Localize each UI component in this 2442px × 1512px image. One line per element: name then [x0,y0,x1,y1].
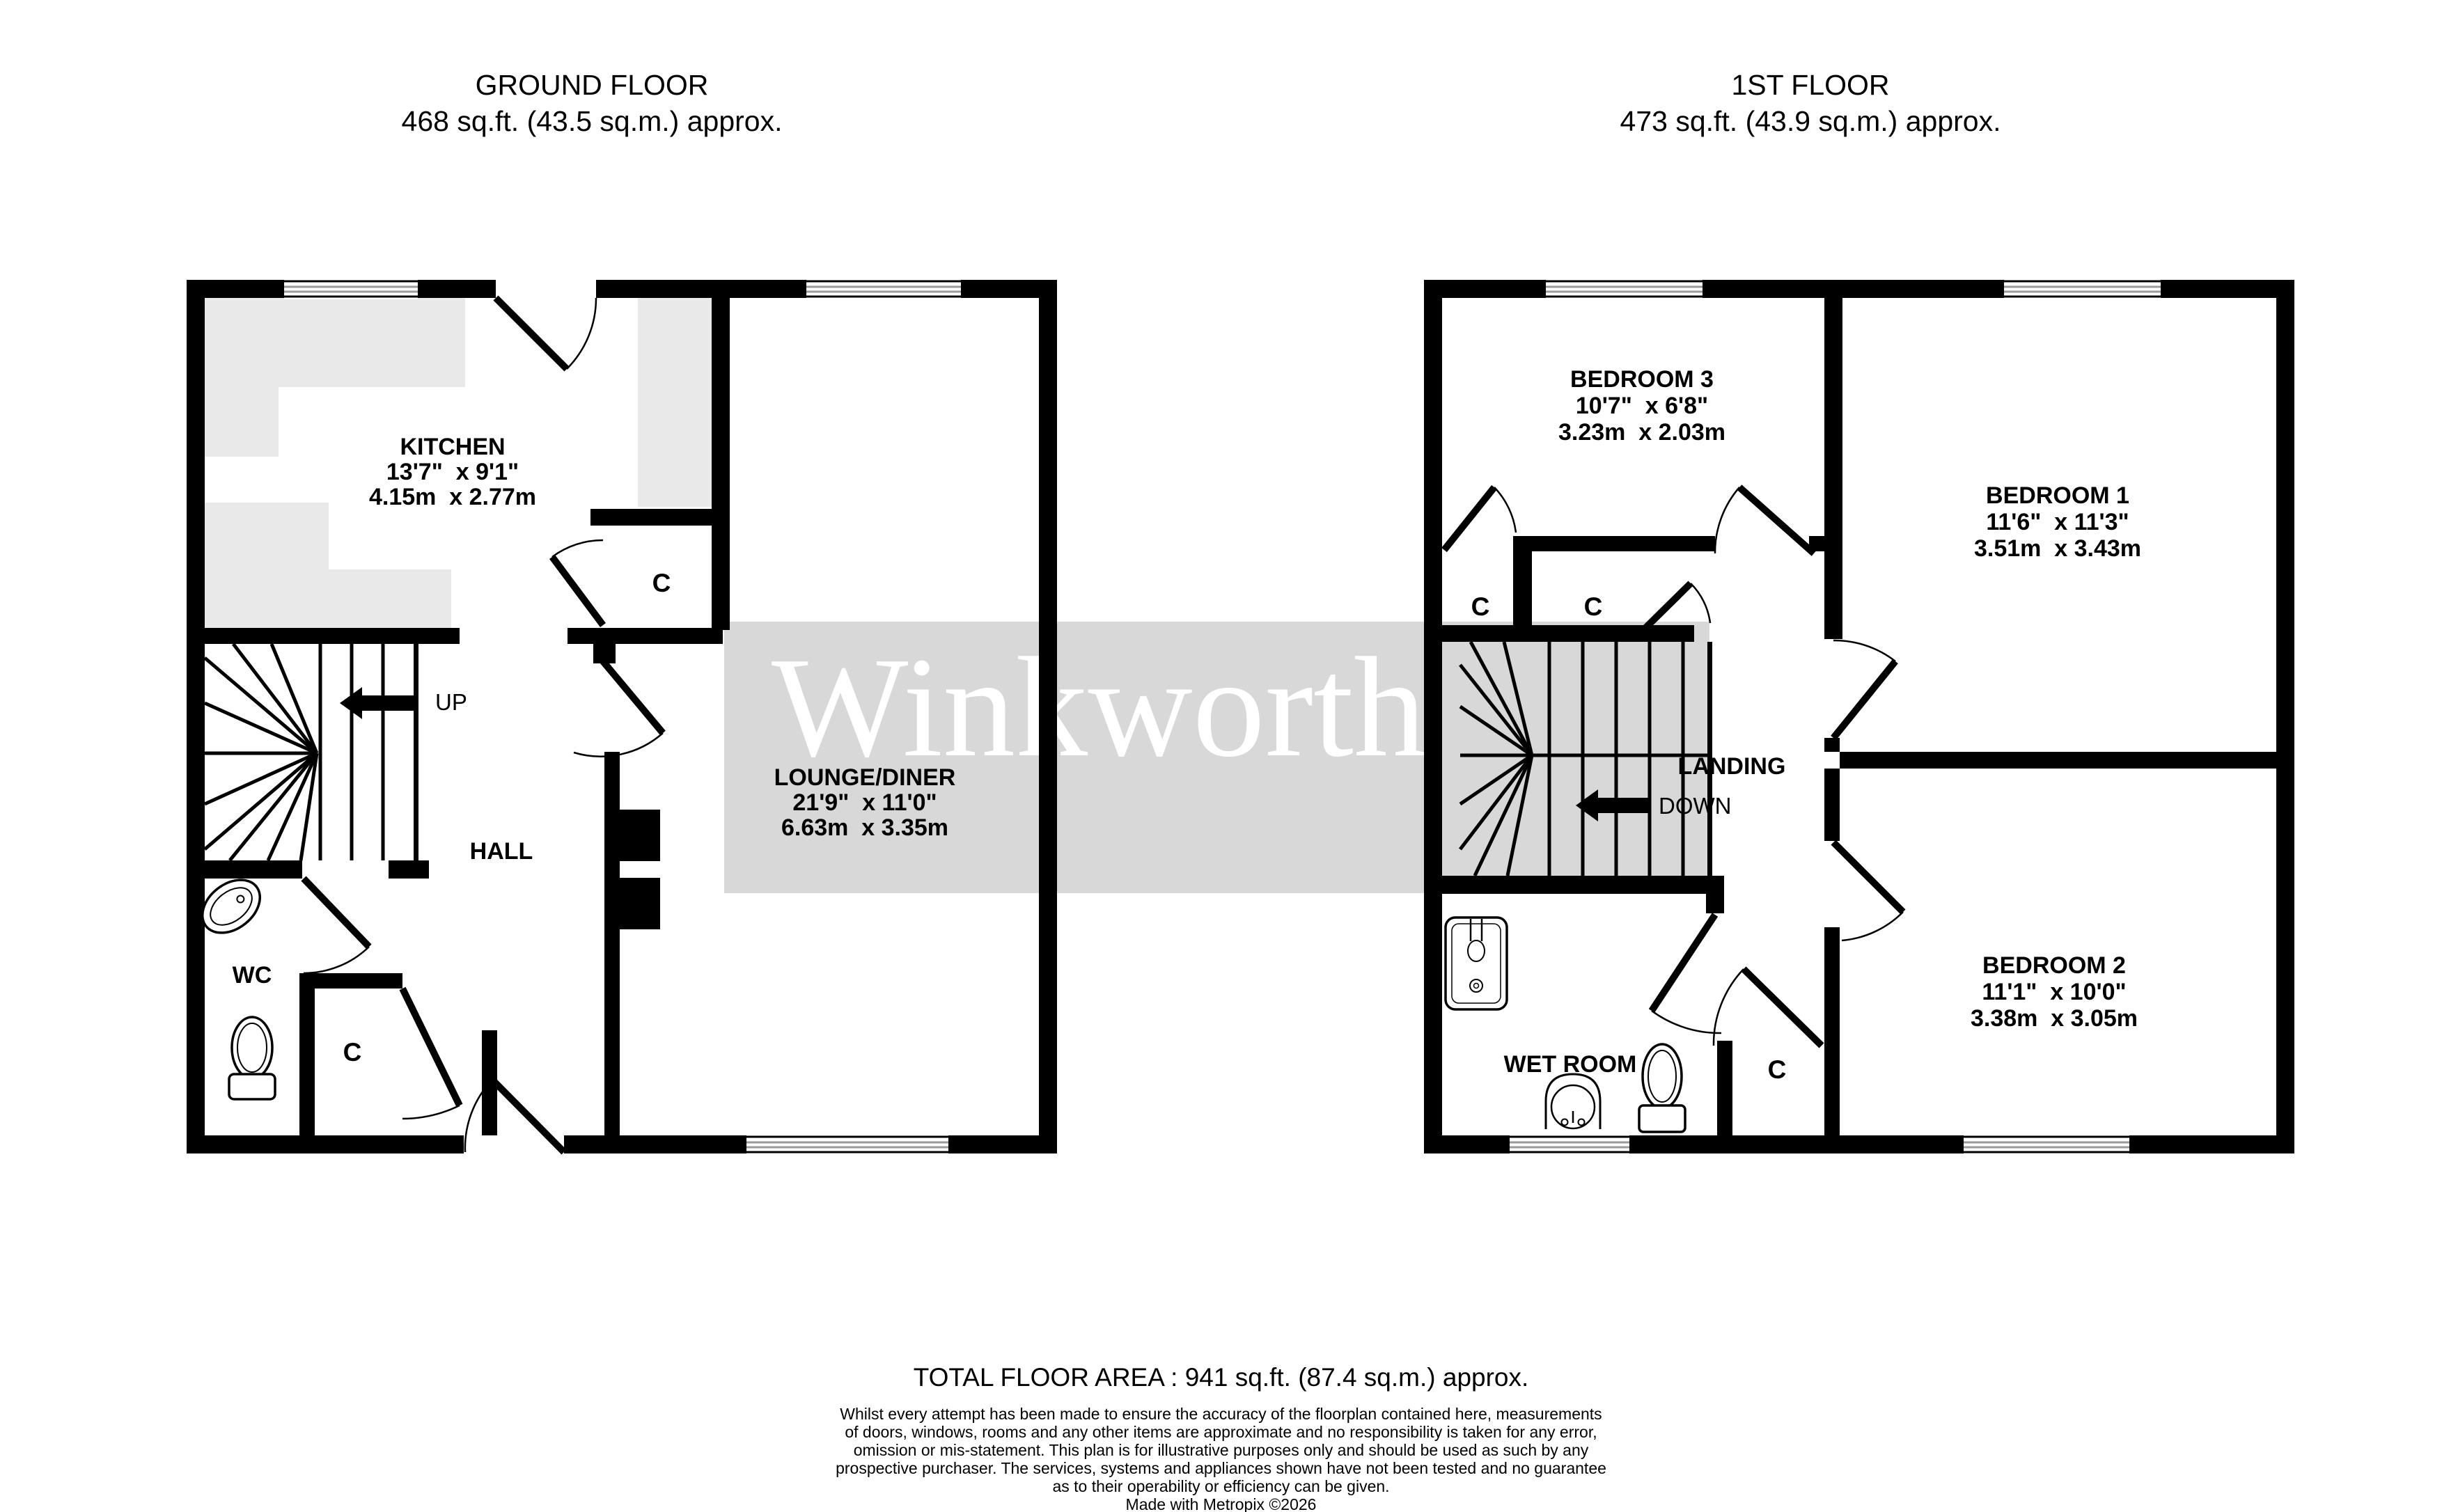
hall-closet-door [402,989,460,1119]
bedroom2-door [1833,842,1903,940]
kitchen-label: KITCHEN [400,434,505,460]
wc-label: WC [233,962,272,989]
lounge-label: LOUNGE/DINER [774,764,956,791]
disclaimer-line-2: of doors, windows, rooms and any other i… [0,1423,2442,1441]
first-closet-label-2: C [1584,592,1603,621]
hall-label: HALL [470,838,533,865]
total-floor-area: TOTAL FLOOR AREA : 941 sq.ft. (87.4 sq.m… [0,1362,2442,1394]
bedroom3-dim-ft: 10'7" x 6'8" [1576,393,1708,419]
first-fixtures [1446,918,1685,1132]
shower-icon [1546,1074,1600,1129]
disclaimer-line-5: as to their operability or efficiency ca… [0,1477,2442,1495]
kitchen-dim-ft: 13'7" x 9'1" [386,459,519,485]
bedroom3-door [1715,487,1814,553]
disclaimer-line-1: Whilst every attempt has been made to en… [0,1405,2442,1423]
wet-room-label: WET ROOM [1504,1051,1637,1078]
bedroom2-label: BEDROOM 2 [1982,952,2126,979]
first-closet-label-1: C [1471,592,1490,621]
left-closet-door [1444,487,1516,550]
first-closet-label-3: C [1768,1055,1787,1084]
metropix-credit: Made with Metropix ©2026 [0,1495,2442,1512]
ground-closet-label-2: C [343,1038,362,1066]
bedroom1-door [1833,640,1895,738]
first-closet-door [1714,969,1822,1046]
ground-closet-label-1: C [652,569,671,597]
bedroom3-label: BEDROOM 3 [1570,366,1714,393]
kitchen-dim-m: 4.15m x 2.77m [369,484,536,510]
footer: TOTAL FLOOR AREA : 941 sq.ft. (87.4 sq.m… [0,1362,2442,1512]
back-door [496,298,596,369]
landing-label: LANDING [1678,753,1786,780]
bedroom1-label: BEDROOM 1 [1986,482,2129,509]
bedroom1-dim-m: 3.51m x 3.43m [1974,535,2141,562]
floorplan-page: GROUND FLOOR 468 sq.ft. (43.5 sq.m.) app… [0,0,2442,1512]
lounge-dim-ft: 21'9" x 11'0" [792,789,937,816]
disclaimer-line-3: omission or mis-statement. This plan is … [0,1441,2442,1459]
kitchen-closet-door [552,540,603,625]
lounge-dim-m: 6.63m x 3.35m [781,814,948,841]
disclaimer-line-4: prospective purchaser. The services, sys… [0,1459,2442,1477]
watermark-text: Winkworth [772,627,1426,787]
wet-room-sink-icon [1446,918,1507,1009]
floorplan-drawing: Winkworth [0,0,2442,1512]
kitchen-door [574,661,663,757]
up-label: UP [435,689,467,715]
bedroom1-dim-ft: 11'6" x 11'3" [1986,509,2129,535]
ground-stairs: UP [205,644,467,860]
bedroom2-dim-ft: 11'1" x 10'0" [1982,979,2126,1005]
wc-toilet-icon [229,1017,275,1099]
wet-room-door [1652,915,1721,1033]
ground-stair-winders [205,644,317,860]
wc-door [304,879,369,973]
down-label: DOWN [1659,793,1731,819]
bedroom2-dim-m: 3.38m x 3.05m [1971,1005,2138,1032]
bedroom3-dim-m: 3.23m x 2.03m [1558,419,1725,446]
wet-room-toilet-icon [1639,1044,1685,1132]
